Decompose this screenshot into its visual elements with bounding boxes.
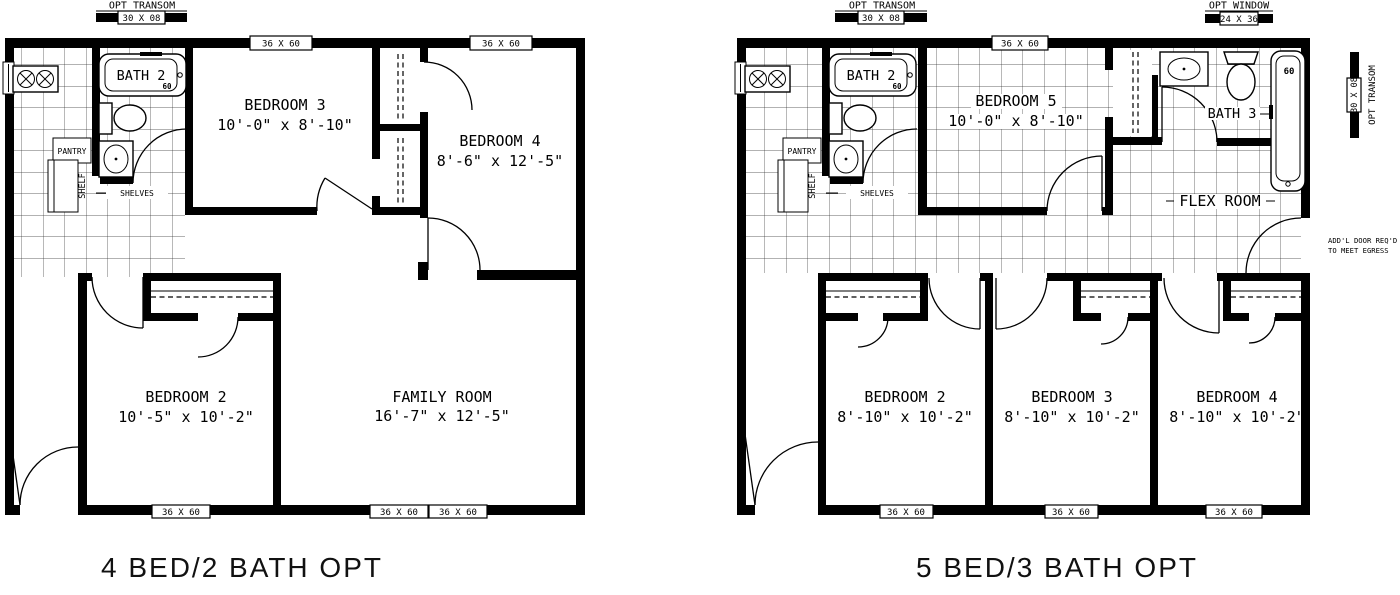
shelf-label: SHELF — [78, 173, 88, 199]
bedroom2-label: BEDROOM 2 — [145, 388, 226, 406]
entry-door-arc — [755, 442, 818, 505]
opt-transom-annotation: OPT TRANSOM 30 X 08 — [835, 1, 927, 25]
bedroom2-dims: 8'-10" x 10'-2" — [837, 408, 972, 426]
pantry-label: PANTRY — [788, 147, 817, 156]
bedroom2-door-arc — [929, 278, 980, 329]
bedroom3-label: BEDROOM 3 — [1031, 388, 1112, 406]
tub-size-label: 60 — [162, 82, 172, 91]
bedroom4-dims: 8'-6" x 12'-5" — [437, 152, 563, 170]
bedroom2-closet-door-arc — [198, 317, 238, 357]
opt-transom-annotation: OPT TRANSOM 30 X 08 — [96, 1, 187, 25]
shelves-label: SHELVES — [860, 189, 894, 198]
bedroom2-label: BEDROOM 2 — [864, 388, 945, 406]
window-tag: 36 X 60 — [1052, 508, 1090, 518]
bedroom5-dims: 10'-0" x 8'-10" — [948, 112, 1083, 130]
bedroom2-dims: 10'-5" x 10'-2" — [118, 408, 253, 426]
bedroom3-label: BEDROOM 3 — [244, 96, 325, 114]
side-transom-annotation: 30 X 08 OPT TRANSOM — [1347, 52, 1378, 138]
side-transom-size: 30 X 08 — [1350, 77, 1360, 113]
window-tag: 36 X 60 — [482, 40, 520, 50]
bath3-toilet-icon — [1224, 52, 1258, 100]
side-transom-label: OPT TRANSOM — [1368, 65, 1378, 125]
bedroom3-door-leaf — [325, 178, 372, 209]
bedroom3-dims: 10'-0" x 8'-10" — [217, 116, 352, 134]
shelves: SHELVES — [96, 186, 168, 199]
bedroom4-label: BEDROOM 4 — [459, 132, 540, 150]
floor-plan-sheet: PANTRY SHELF SHELVES BATH 2 60 36 X 60 3… — [0, 0, 1400, 595]
toilet-icon — [99, 103, 112, 134]
opt-transom-label: OPT TRANSOM — [849, 1, 915, 12]
tub-size-label: 60 — [892, 82, 902, 91]
window-tag: 36 X 60 — [162, 508, 200, 518]
tub-faucet-icon — [178, 73, 183, 78]
opt-transom-size: 30 X 08 — [123, 14, 161, 24]
toilet-icon — [829, 103, 842, 134]
window-tag: 36 X 60 — [1215, 508, 1253, 518]
egress-note-line1: ADD'L DOOR REQ'D — [1328, 236, 1397, 245]
pantry: PANTRY — [53, 138, 91, 163]
bedroom3-door-arc — [317, 178, 325, 211]
opt-window-label: OPT WINDOW — [1209, 1, 1270, 12]
pantry: PANTRY — [783, 138, 821, 163]
tub-faucet-icon — [908, 73, 913, 78]
egress-note: ADD'L DOOR REQ'D TO MEET EGRESS — [1328, 236, 1397, 255]
bedroom4-closet-door-arc — [424, 62, 472, 110]
bedroom3-dims: 8'-10" x 10'-2" — [1004, 408, 1139, 426]
plan-caption-right: 5 BED/3 BATH OPT — [877, 552, 1237, 584]
bedroom3-door-arc — [996, 278, 1047, 329]
bedroom4-label: BEDROOM 4 — [1196, 388, 1277, 406]
plan-4bed-2bath: PANTRY SHELF SHELVES BATH 2 60 36 X 60 3… — [0, 0, 660, 545]
bedroom4-closet-door-arc — [1249, 317, 1275, 343]
kitchen-sink-icon — [745, 66, 790, 92]
bedroom4-door-arc — [428, 218, 480, 270]
window-tag: 36 X 60 — [439, 508, 477, 518]
window-tag: 36 X 60 — [887, 508, 925, 518]
opt-window-size: 24 X 36 — [1220, 15, 1258, 25]
shelves-label: SHELVES — [120, 189, 154, 198]
opt-window-annotation: OPT WINDOW 24 X 36 — [1205, 1, 1273, 26]
bath3-tub-size: 60 — [1284, 67, 1295, 77]
bath2-label: BATH 2 — [117, 68, 166, 84]
family-room-label: FAMILY ROOM — [392, 388, 491, 406]
shelf-label: SHELF — [808, 173, 818, 199]
bath3-tub-icon: 60 — [1269, 51, 1305, 191]
egress-note-line2: TO MEET EGRESS — [1328, 246, 1389, 255]
plan-caption-left: 4 BED/2 BATH OPT — [62, 552, 422, 584]
bedroom4-door-arc — [1164, 278, 1219, 333]
window-tag: 36 X 60 — [1001, 40, 1039, 50]
bath2-label: BATH 2 — [847, 68, 896, 84]
kitchen-sink-icon — [13, 66, 58, 92]
bedroom2-closet-door-arc — [858, 317, 888, 347]
bedroom3-closet-door-arc — [1101, 317, 1128, 344]
bedroom5-label: BEDROOM 5 — [975, 92, 1056, 110]
family-room-dims: 16'-7" x 12'-5" — [374, 407, 509, 425]
plan-5bed-3bath: PANTRY SHELF SHELVES BATH 2 60 — [700, 0, 1400, 545]
entry-door-arc — [20, 447, 78, 505]
opt-transom-label: OPT TRANSOM — [109, 1, 175, 12]
bedroom2-door-arc — [92, 277, 143, 328]
window-tag: 36 X 60 — [262, 40, 300, 50]
window-tag: 36 X 60 — [380, 508, 418, 518]
bedroom4-dims: 8'-10" x 10'-2" — [1169, 408, 1304, 426]
pantry-label: PANTRY — [58, 147, 87, 156]
flex-room-label: FLEX ROOM — [1179, 192, 1260, 210]
bath3-label: BATH 3 — [1208, 106, 1257, 122]
opt-transom-size: 30 X 08 — [862, 14, 900, 24]
